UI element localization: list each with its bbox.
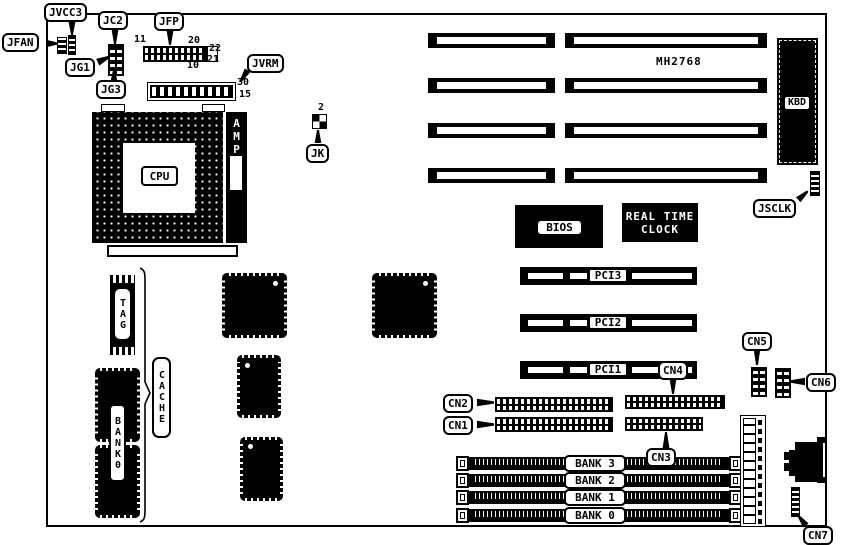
label-cn3: CN3 [646,448,676,467]
latch-detail [733,477,738,484]
rtc-text-line1: REAL TIME [626,210,695,223]
label-jsclk: JSCLK [753,199,796,218]
board-part-number: MH2768 [656,55,702,68]
slot-opening [574,37,758,44]
pin1-dot [248,444,253,449]
isa-slot [428,123,555,138]
pin-row [627,425,701,429]
pci2-label: PCI2 [588,315,628,330]
pin-row [145,48,205,53]
io-qfp [240,437,283,501]
power-pin-column [743,418,756,524]
label-cn6: CN6 [806,373,836,392]
cn3-header [625,417,703,431]
slot-opening [632,273,692,279]
cn4-header [625,395,725,409]
pin-column [777,370,782,396]
cpu-label: CPU [141,166,178,186]
bank0-label: BANK 0 [564,507,626,524]
cn1-header [495,417,613,432]
cn7-connector [791,487,800,517]
cn5-header [751,367,767,397]
slot-opening [632,320,692,326]
jk-pin-2: 2 [318,103,324,113]
latch-detail [733,512,738,519]
jvrm-body [150,85,233,98]
slot-opening [437,82,546,89]
chipset-qfp [372,273,437,338]
jfp-pin-10: 10 [187,61,199,71]
label-cn1: CN1 [443,416,473,435]
label-jvcc3: JVCC3 [44,3,87,22]
pin-row [497,419,611,424]
pci-slot-2: PCI2 [520,314,697,332]
slot-opening [574,82,758,89]
jsclk-connector [810,171,820,196]
slot-opening [437,127,546,134]
power-pin-column [758,418,762,524]
pin-row [627,403,723,407]
label-jfp: JFP [154,12,184,31]
simm-latch [456,508,469,523]
latch-detail [733,494,738,501]
bank0-chip-label: BANK0 [109,404,126,482]
jvrm-header [147,82,236,101]
slot-opening [528,320,563,326]
pci1-label: PCI1 [588,362,628,377]
pin-column [110,46,115,74]
pin-row [497,426,611,431]
amp-label: AMP [231,117,242,156]
slot-opening [437,37,546,44]
pin-column [753,369,758,395]
pin1-dot [245,363,250,368]
simm-latch [456,490,469,505]
jfp-pin-20: 20 [188,36,200,46]
label-cn4: CN4 [658,361,688,380]
din-connector-neck [789,450,796,476]
tag-chip-pins [110,275,135,283]
slot-opening [437,172,546,179]
din-connector-tab [784,452,790,460]
bios-label-text: BIOS [546,221,573,234]
cn6-header [775,368,791,398]
isa-slot [565,78,767,93]
latch-detail [733,460,738,467]
isa-slot [428,168,555,183]
tag-chip-pins [110,347,135,355]
tag-label-text: TAG [118,298,128,331]
latch-detail [460,477,465,484]
din-connector-tab [784,463,790,471]
pin1-dot [423,281,428,286]
isa-slot [565,123,767,138]
jfp-pin-21: 21 [207,55,219,65]
bank3-label: BANK 3 [564,455,626,472]
latch-detail [460,494,465,501]
label-jk: JK [306,144,329,163]
amp-window [230,156,242,190]
rtc-text-line2: CLOCK [641,223,679,236]
slot-opening [570,273,587,279]
real-time-clock-chip: REAL TIME CLOCK [622,203,698,242]
pin-row [497,399,611,404]
bios-label: BIOS [536,219,583,236]
din-connector-step [817,477,826,483]
pin-row [627,419,701,423]
socket-lever [107,245,238,257]
cpu-label-text: CPU [150,170,170,183]
simm-latch [456,456,469,471]
label-jg3: JG3 [96,80,126,99]
io-qfp [237,355,281,418]
label-cn7: CN7 [803,526,833,545]
slot-opening [570,320,587,326]
jumper-block-jc [108,44,124,76]
jvrm-pin-15: 15 [239,90,251,100]
latch-detail [460,460,465,467]
tag-label: TAG [113,287,132,341]
socket-tab [202,104,225,112]
label-kbd: KBD [783,95,811,111]
din-connector-step [817,437,826,443]
cache-label-text: CACHE [157,370,167,425]
motherboard-diagram: MH2768 KBD JSCLK JVCC3 JFAN JC2 JG1 JG3 … [0,0,842,545]
pci-slot-3: PCI3 [520,267,697,285]
isa-slot [565,168,767,183]
label-jc2: JC2 [98,11,128,30]
chipset-qfp [222,273,287,338]
label-cn5: CN5 [742,332,772,351]
slot-opening [574,172,758,179]
power-connector [740,415,766,527]
pci3-label: PCI3 [588,268,628,283]
pin1-dot [273,281,278,286]
slot-opening [528,367,563,373]
label-jfan: JFAN [2,33,39,52]
jfan-connector [57,37,67,54]
jfp-pin-22: 22 [209,44,221,54]
bank0-chip-label-text: BANK0 [113,416,123,471]
cn2-header [495,397,613,412]
latch-detail [460,512,465,519]
isa-slot [428,78,555,93]
jk-jumper [312,114,327,129]
socket-tab [101,104,125,112]
label-jvrm: JVRM [247,54,284,73]
pin-row [627,397,723,401]
slot-opening [528,273,563,279]
pin-column [760,369,765,395]
jvcc3-connector [68,35,76,55]
bank2-label: BANK 2 [564,472,626,489]
isa-slot [428,33,555,48]
simm-latch [456,473,469,488]
din-connector-body [795,442,823,482]
pin-row [152,87,231,96]
label-jg1: JG1 [65,58,95,77]
label-cn2: CN2 [443,394,473,413]
slot-opening [570,367,587,373]
cache-label: CACHE [152,357,171,438]
pin-column [117,46,122,74]
bank1-label: BANK 1 [564,489,626,506]
pin-column [784,370,789,396]
isa-slot [565,33,767,48]
pin-row [497,406,611,411]
jfp-pin-11: 11 [134,35,146,45]
slot-opening [574,127,758,134]
